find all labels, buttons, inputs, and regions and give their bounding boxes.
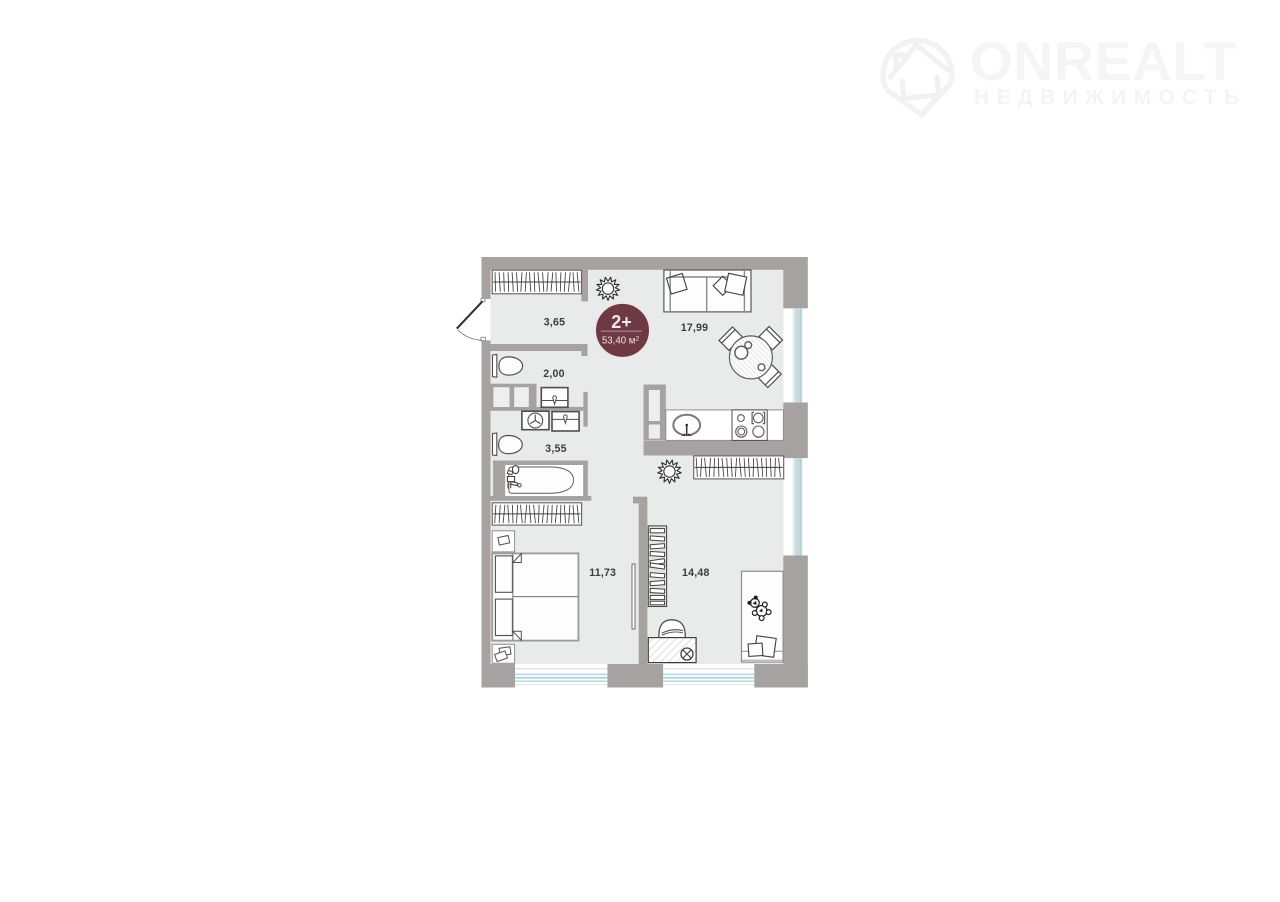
svg-text:17,99: 17,99 bbox=[681, 322, 709, 334]
svg-text:ONREALT: ONREALT bbox=[970, 30, 1237, 92]
svg-text:3,55: 3,55 bbox=[545, 443, 566, 455]
svg-text:53,40 м2: 53,40 м2 bbox=[602, 336, 640, 347]
svg-text:3,65: 3,65 bbox=[544, 316, 565, 328]
svg-text:НЕДВИЖИМОСТЬ: НЕДВИЖИМОСТЬ bbox=[974, 86, 1246, 109]
svg-text:14,48: 14,48 bbox=[682, 567, 710, 579]
svg-text:2+: 2+ bbox=[611, 312, 632, 332]
svg-text:11,73: 11,73 bbox=[589, 567, 616, 579]
svg-text:2,00: 2,00 bbox=[543, 368, 564, 380]
